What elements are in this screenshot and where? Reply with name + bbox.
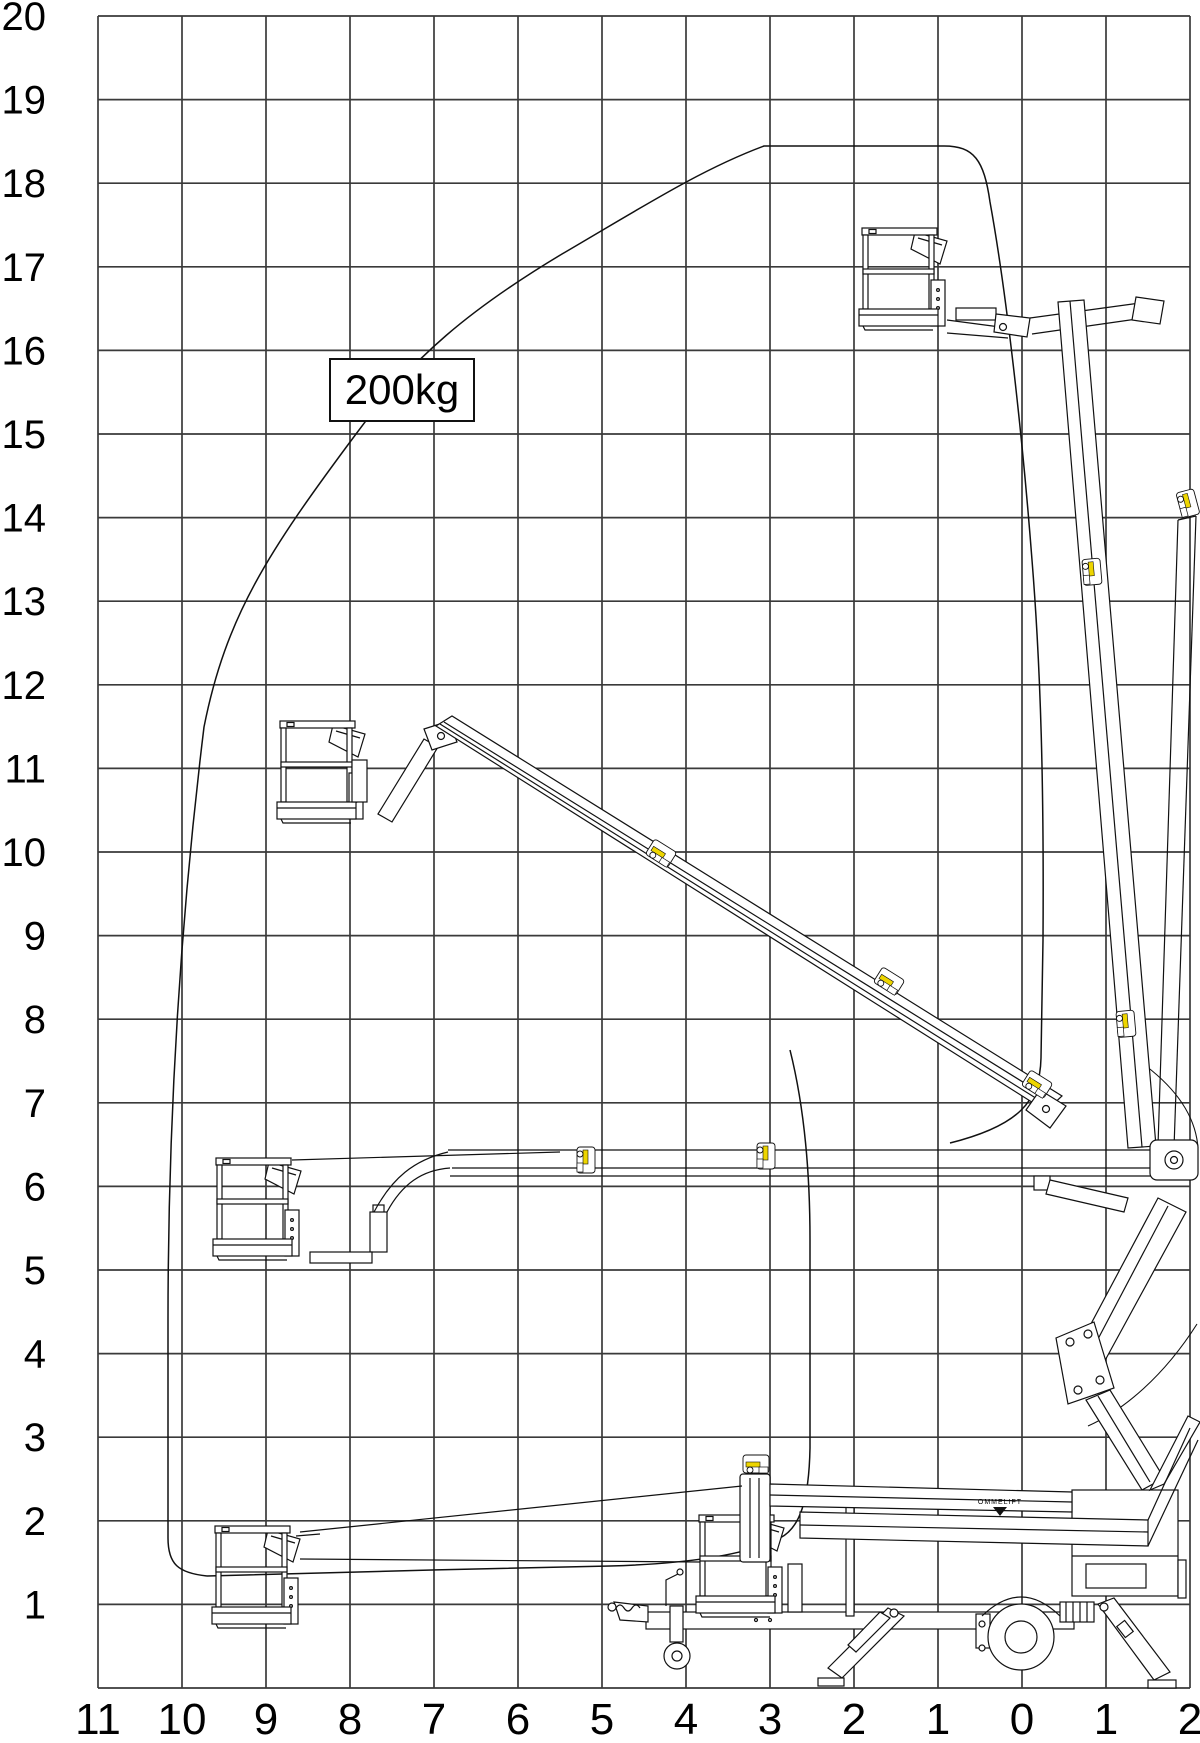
y-axis-tick-label: 1 <box>24 1583 46 1627</box>
platform-basket-ground <box>212 1526 300 1628</box>
x-axis-tick-label: 2 <box>842 1695 866 1743</box>
x-axis-tick-label: 8 <box>338 1695 362 1743</box>
platform-basket-17m <box>859 228 947 330</box>
telescope-clamp <box>577 1147 595 1173</box>
telescope-clamp <box>743 1455 769 1473</box>
x-axis-outreach-labels: 1110987654321012 <box>75 1695 1200 1743</box>
right-outrigger-foot <box>1148 1680 1176 1688</box>
telescope-clamp <box>1082 558 1102 585</box>
y-axis-tick-label: 13 <box>2 580 47 624</box>
riser-arm-structure <box>1056 1198 1186 1490</box>
y-axis-height-labels: 2019181716151413121110987654321 <box>2 0 47 1627</box>
trailer-stowed-machine: OMMELIFT <box>608 1416 1200 1688</box>
x-axis-tick-label: 11 <box>75 1695 121 1743</box>
y-axis-tick-label: 2 <box>24 1500 46 1544</box>
telescope-clamp <box>757 1143 775 1169</box>
y-axis-tick-label: 9 <box>24 915 46 959</box>
y-axis-tick-label: 14 <box>2 497 47 541</box>
reach-diagram: 2019181716151413121110987654321 11109876… <box>0 0 1200 1743</box>
y-axis-tick-label: 15 <box>2 413 47 457</box>
y-axis-tick-label: 10 <box>2 831 47 875</box>
telescope-clamp <box>1116 1010 1136 1037</box>
x-axis-tick-label: 0 <box>1010 1695 1034 1743</box>
y-axis-tick-label: 12 <box>2 664 47 708</box>
jib-cylinder <box>370 1212 387 1252</box>
telescope-clamp <box>1176 489 1200 519</box>
platform-basket-6m <box>213 1158 301 1260</box>
leveling-cylinder <box>1046 1180 1128 1212</box>
y-axis-tick-label: 18 <box>2 162 47 206</box>
y-axis-tick-label: 6 <box>24 1165 46 1209</box>
boom-extended-low <box>300 1486 742 1532</box>
x-axis-tick-label: 4 <box>674 1695 698 1743</box>
y-axis-tick-label: 20 <box>2 0 47 39</box>
x-axis-tick-label: 1 <box>1094 1695 1118 1743</box>
envelope-lower-boundary <box>207 1050 810 1576</box>
reach-diagram-page: 2019181716151413121110987654321 11109876… <box>0 0 1200 1743</box>
x-axis-tick-label: 1 <box>926 1695 950 1743</box>
y-axis-tick-label: 11 <box>4 747 46 791</box>
y-axis-tick-label: 3 <box>24 1416 46 1460</box>
y-axis-tick-label: 19 <box>2 79 47 123</box>
machine-pose-platform-11m <box>277 716 1066 1128</box>
x-axis-tick-label: 10 <box>158 1695 207 1743</box>
x-axis-tick-label: 2 <box>1178 1695 1200 1743</box>
left-outrigger-foot <box>818 1678 844 1686</box>
jib-cylinder <box>378 739 438 822</box>
machine-pose-platform-ground <box>212 1486 742 1628</box>
y-axis-tick-label: 5 <box>24 1249 46 1293</box>
x-axis-tick-label: 5 <box>590 1695 614 1743</box>
basket-mast <box>352 760 367 802</box>
load-capacity-badge: 200kg <box>330 359 474 421</box>
leveling-cylinder-stowed <box>788 1564 802 1612</box>
load-capacity-label: 200kg <box>345 366 459 413</box>
x-axis-tick-label: 6 <box>506 1695 530 1743</box>
y-axis-tick-label: 17 <box>2 246 47 290</box>
leveling-cylinder <box>956 308 996 320</box>
envelope-outline <box>168 146 1043 1576</box>
jockey-wheel-fork <box>670 1606 683 1642</box>
machine-pose-platform-6m <box>213 1140 1198 1263</box>
telescopic-boom-raised <box>1058 300 1156 1148</box>
y-axis-tick-label: 16 <box>2 329 47 373</box>
basket-bracket <box>310 1252 372 1263</box>
brand-logo-triangle <box>993 1507 1007 1516</box>
y-axis-tick-label: 4 <box>24 1333 46 1377</box>
y-axis-tick-label: 8 <box>24 998 46 1042</box>
x-axis-tick-label: 9 <box>254 1695 278 1743</box>
x-axis-tick-label: 7 <box>422 1695 446 1743</box>
turret-side-panel <box>1178 1560 1186 1598</box>
axle-box <box>1060 1602 1094 1622</box>
boom-head <box>1132 297 1164 324</box>
handbrake-lever <box>666 1574 678 1606</box>
boom-head-stowed <box>740 1474 770 1562</box>
y-axis-tick-label: 7 <box>24 1082 46 1126</box>
right-outrigger-leg <box>1098 1598 1170 1680</box>
x-axis-tick-label: 3 <box>758 1695 782 1743</box>
brand-label: OMMELIFT <box>978 1499 1022 1506</box>
